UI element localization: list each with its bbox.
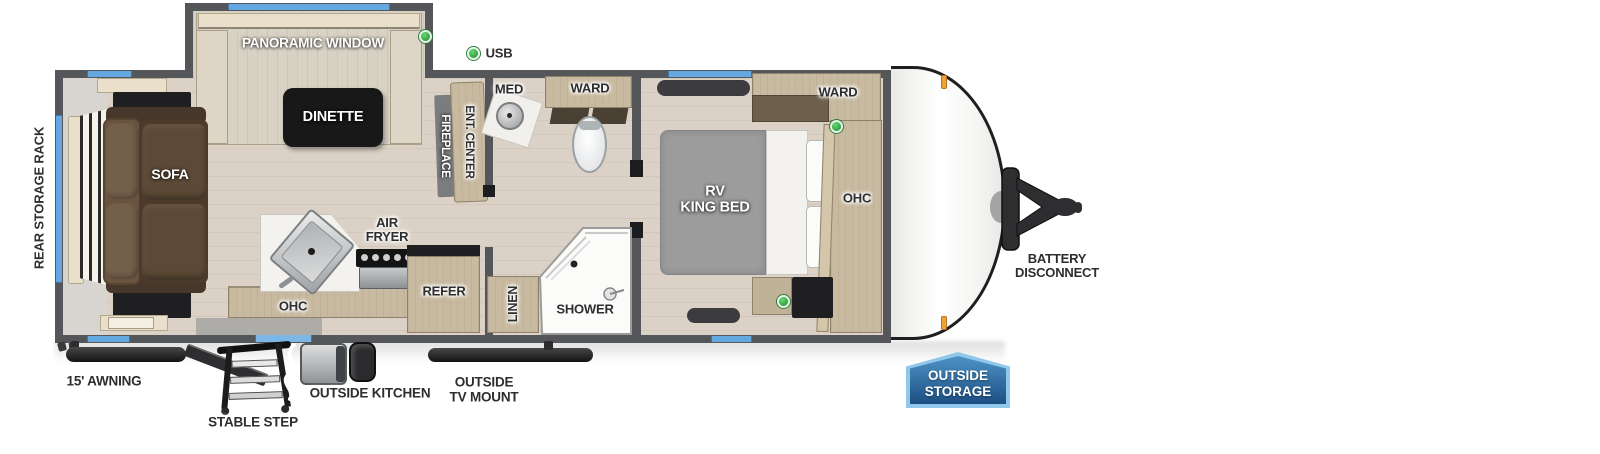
sink-drain	[308, 248, 315, 255]
outside-kitchen-kettle	[349, 342, 376, 382]
bedroom-usb-dot-top	[830, 120, 843, 133]
usb-label: USB	[486, 46, 513, 61]
tv-mount-stub	[544, 341, 553, 350]
outside-storage-label: OUTSIDE STORAGE	[906, 368, 1010, 399]
stable-step-label: STABLE STEP	[208, 415, 298, 430]
bedroom-top-window	[668, 71, 752, 77]
range-knob-3	[383, 254, 390, 261]
front-wall	[883, 70, 891, 343]
bedroom-ohc-cabinet	[830, 120, 882, 333]
slideout-window	[228, 4, 390, 10]
bedroom-wall-upper	[632, 78, 641, 160]
sofa-back-pillow-top	[106, 123, 139, 199]
stable-step-wheel-right	[281, 405, 289, 413]
battery-disconnect-label: BATTERY DISCONNECT	[1015, 252, 1099, 280]
marker-light-bottom	[941, 316, 947, 330]
air-fryer-line2: FRYER	[366, 230, 409, 244]
air-fryer-label: AIR FRYER	[366, 216, 409, 244]
sofa-cushion-top	[142, 124, 206, 200]
ward-bath-label: WARD	[571, 81, 610, 96]
panoramic-window-label: PANORAMIC WINDOW	[242, 36, 384, 51]
rv-floorplan-diagram: PANORAMIC WINDOW DINETTE REAR STORAGE RA…	[0, 0, 1600, 454]
stable-step-tread-1	[231, 359, 277, 368]
battery-disconnect-line2: DISCONNECT	[1015, 266, 1099, 280]
bedroom-bottom-window	[711, 336, 752, 342]
bedroom-door-post-top	[630, 160, 643, 177]
rear-shelf-top	[97, 78, 167, 93]
rear-wall-window	[56, 115, 62, 283]
bedroom-bench-top	[657, 80, 750, 96]
air-fryer-line1: AIR	[366, 216, 409, 230]
shower-label: SHOWER	[556, 302, 613, 317]
panoramic-window-sill	[198, 13, 420, 29]
outside-storage-line1: OUTSIDE	[906, 368, 1010, 384]
outside-storage-line2: STORAGE	[906, 384, 1010, 400]
rear-storage-rack-label: REAR STORAGE RACK	[32, 127, 47, 269]
ohc-bedroom-label: OHC	[843, 191, 871, 206]
med-label: MED	[495, 82, 523, 97]
entry-landing	[196, 318, 322, 335]
tv-mount-label: OUTSIDE TV MOUNT	[450, 375, 519, 404]
king-bed-foot	[766, 130, 808, 275]
linen-label: LINEN	[506, 286, 520, 323]
dinette-label: DINETTE	[303, 109, 364, 125]
marker-light-top	[941, 75, 947, 89]
sofa-cushion-bottom	[142, 204, 206, 280]
front-cap	[891, 66, 1006, 340]
shower	[538, 226, 634, 336]
top-left-window	[87, 71, 132, 77]
sofa-label: SOFA	[151, 166, 188, 182]
ent-center-label: ENT. CENTER	[463, 105, 475, 178]
sofa-back-pillow-bottom	[106, 203, 139, 279]
ward-bedroom-label: WARD	[819, 85, 858, 100]
outside-kitchen-label: OUTSIDE KITCHEN	[310, 386, 431, 401]
book	[108, 317, 154, 329]
slideout-left-wall	[185, 3, 193, 78]
outside-kitchen-griddle-band	[336, 346, 345, 382]
rv-king-bed-line1: RV	[680, 184, 749, 200]
battery-disconnect-line1: BATTERY	[1015, 252, 1099, 266]
awning-label: 15' AWNING	[67, 374, 142, 389]
rv-king-bed-line2: KING BED	[680, 200, 749, 216]
awning-roll	[66, 347, 186, 362]
range-knob-1	[361, 254, 368, 261]
tv-mount-bar	[428, 348, 593, 362]
bath-door-post	[483, 185, 495, 197]
fireplace-label: FIREPLACE	[439, 114, 451, 177]
dinette-bench-right	[390, 30, 422, 144]
usb-callout-dot	[467, 47, 480, 60]
med-sink-drain	[507, 113, 512, 118]
bedroom-cabinet-dark	[792, 277, 833, 318]
usb-indicator-dot	[419, 30, 432, 43]
ohc-kitchen-label: OHC	[279, 299, 307, 314]
outside-kitchen-cord	[280, 343, 302, 401]
stable-step-tread-2	[230, 375, 280, 384]
refer-label: REFER	[422, 284, 465, 299]
bedroom-bench-bottom	[687, 308, 740, 323]
bedroom-usb-dot-bottom	[777, 295, 790, 308]
bedroom-ward-shelf	[752, 95, 829, 122]
bottom-wall	[55, 335, 891, 343]
hitch-assembly	[990, 162, 1090, 257]
bottom-left-window	[87, 336, 130, 342]
stable-step-tread-3	[229, 391, 283, 400]
tv-mount-line2: TV MOUNT	[450, 390, 519, 405]
toilet-seat	[579, 121, 601, 130]
range-knob-4	[394, 254, 401, 261]
range-oven	[359, 267, 411, 289]
range-knob-2	[372, 254, 379, 261]
tv-mount-line1: OUTSIDE	[450, 375, 519, 390]
rv-king-bed-label: RV KING BED	[680, 184, 749, 215]
